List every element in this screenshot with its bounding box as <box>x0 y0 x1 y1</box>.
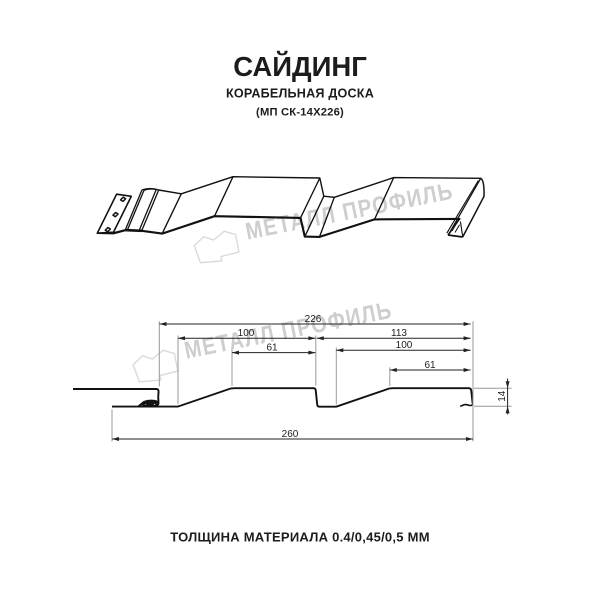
svg-text:100: 100 <box>238 328 255 339</box>
svg-text:14: 14 <box>497 390 508 402</box>
svg-text:ТОЛЩИНА МАТЕРИАЛА 0.4/0,45/0,5: ТОЛЩИНА МАТЕРИАЛА 0.4/0,45/0,5 ММ <box>170 530 430 545</box>
svg-text:61: 61 <box>424 360 436 371</box>
svg-text:260: 260 <box>282 429 299 440</box>
svg-text:61: 61 <box>266 342 278 353</box>
svg-text:КОРАБЕЛЬНАЯ ДОСКА: КОРАБЕЛЬНАЯ ДОСКА <box>226 87 374 101</box>
svg-text:226: 226 <box>305 314 322 325</box>
svg-text:100: 100 <box>396 340 413 351</box>
svg-text:113: 113 <box>391 328 407 339</box>
svg-text:(МП СК-14Х226): (МП СК-14Х226) <box>256 107 344 119</box>
svg-text:САЙДИНГ: САЙДИНГ <box>233 51 367 82</box>
